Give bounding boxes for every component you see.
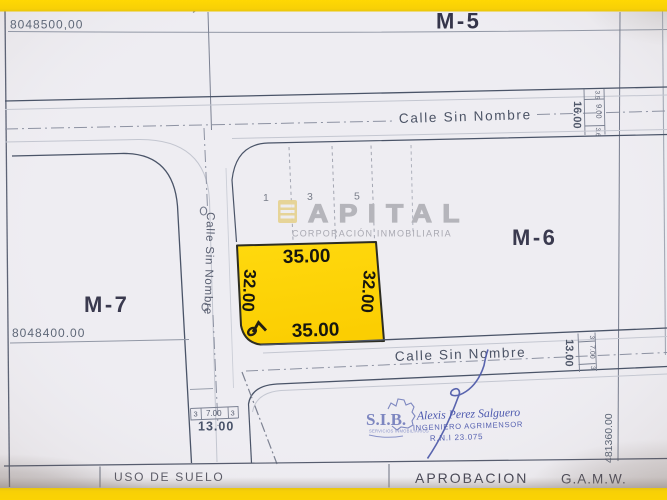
svg-text:3.5: 3.5 (593, 90, 600, 100)
svg-text:APITAL: APITAL (308, 200, 470, 228)
svg-text:3: 3 (231, 409, 235, 418)
svg-text:7.00: 7.00 (588, 345, 595, 359)
svg-text:35.00: 35.00 (291, 319, 339, 342)
svg-text:13.00: 13.00 (563, 339, 575, 367)
svg-text:M-7: M-7 (84, 292, 129, 317)
svg-text:S.I.B.: S.I.B. (366, 410, 406, 429)
svg-text:M-5: M-5 (436, 9, 481, 34)
svg-text:CORPORACIÓN INMOBILIARIA: CORPORACIÓN INMOBILIARIA (292, 229, 452, 239)
svg-text:M-6: M-6 (512, 225, 557, 250)
svg-text:3: 3 (194, 410, 198, 419)
svg-text:9.00: 9.00 (594, 104, 603, 119)
svg-text:R.N.I 23.075: R.N.I 23.075 (430, 432, 484, 443)
svg-text:3: 3 (589, 366, 596, 370)
svg-text:35.00: 35.00 (283, 246, 331, 268)
svg-text:16.00: 16.00 (571, 101, 583, 129)
svg-text:7.00: 7.00 (206, 409, 222, 418)
svg-text:13.00: 13.00 (198, 420, 234, 434)
svg-text:8048500,00: 8048500,00 (10, 18, 83, 32)
svg-text:32.00: 32.00 (238, 269, 259, 312)
svg-text:8048400.00: 8048400.00 (12, 326, 85, 340)
svg-text:1: 1 (263, 192, 269, 204)
svg-text:3: 3 (588, 335, 595, 339)
svg-text:32.00: 32.00 (357, 270, 379, 314)
